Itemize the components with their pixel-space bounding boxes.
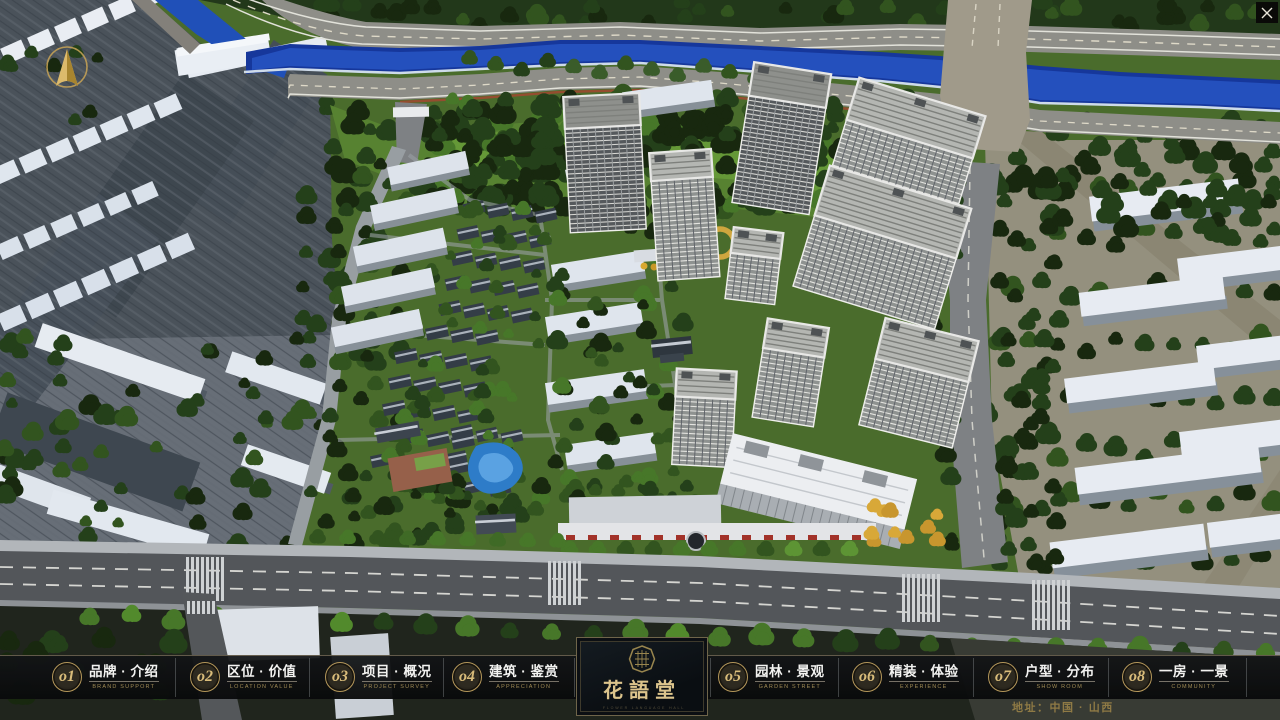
- svg-text:FLOWER LANGUAGE HALL: FLOWER LANGUAGE HALL: [603, 706, 685, 710]
- svg-text:花語堂: 花語堂: [603, 678, 681, 702]
